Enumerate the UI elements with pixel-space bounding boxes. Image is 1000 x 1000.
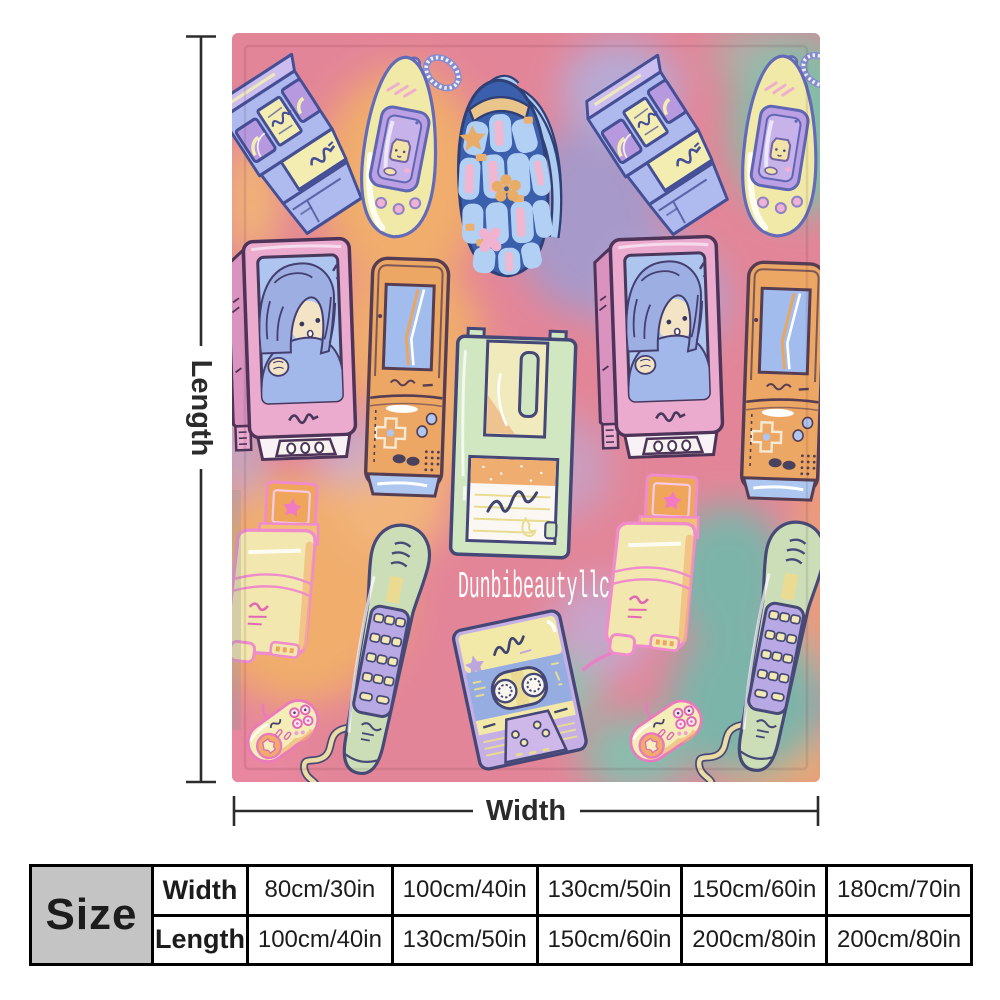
svg-text:Width: Width <box>486 795 566 827</box>
svg-text:Length: Length <box>185 360 217 457</box>
